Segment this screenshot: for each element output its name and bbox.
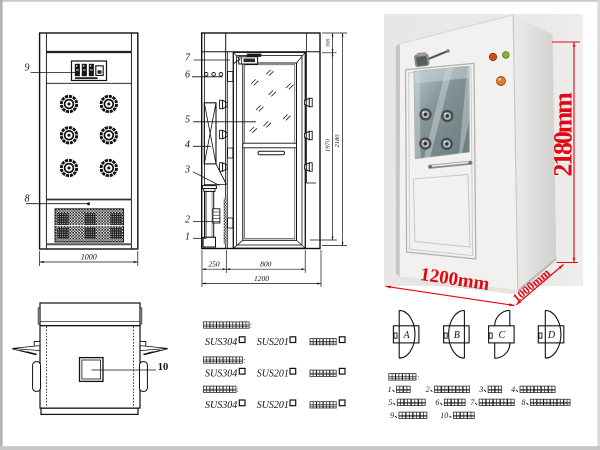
svg-text:C: C bbox=[498, 330, 505, 341]
svg-text::: : bbox=[237, 386, 239, 394]
svg-text:10: 10 bbox=[440, 411, 448, 420]
svg-text:1: 1 bbox=[388, 385, 392, 394]
svg-text:8: 8 bbox=[522, 398, 526, 407]
svg-text::: : bbox=[417, 373, 419, 381]
svg-text:D: D bbox=[547, 330, 556, 341]
svg-text:1200: 1200 bbox=[254, 274, 269, 283]
svg-text:2: 2 bbox=[426, 385, 430, 394]
svg-text:300: 300 bbox=[325, 39, 331, 49]
svg-text:9: 9 bbox=[390, 411, 394, 420]
svg-text:6: 6 bbox=[185, 70, 190, 81]
svg-text:2: 2 bbox=[185, 214, 190, 225]
svg-text:5: 5 bbox=[388, 398, 392, 407]
svg-text:4: 4 bbox=[185, 139, 190, 150]
svg-text::: : bbox=[250, 322, 252, 330]
svg-text:800: 800 bbox=[260, 260, 272, 269]
svg-text::: : bbox=[243, 357, 245, 365]
svg-text:B: B bbox=[454, 330, 460, 341]
svg-text:10: 10 bbox=[158, 362, 169, 373]
svg-text:SUS304: SUS304 bbox=[205, 337, 237, 348]
svg-text:3: 3 bbox=[478, 385, 483, 394]
svg-text:SUS304: SUS304 bbox=[205, 400, 237, 411]
svg-text:2180: 2180 bbox=[334, 134, 341, 148]
svg-text:5: 5 bbox=[185, 115, 190, 126]
svg-text:SUS201: SUS201 bbox=[257, 369, 289, 380]
svg-text:1970: 1970 bbox=[324, 138, 331, 152]
svg-text:2180mm: 2180mm bbox=[549, 92, 578, 177]
svg-text:250: 250 bbox=[208, 260, 220, 269]
svg-text:A: A bbox=[403, 330, 411, 341]
svg-text:6: 6 bbox=[435, 398, 439, 407]
svg-text:3: 3 bbox=[184, 164, 190, 175]
svg-text:SUS304: SUS304 bbox=[205, 369, 237, 380]
svg-text:SUS201: SUS201 bbox=[257, 400, 289, 411]
svg-text:8: 8 bbox=[25, 194, 30, 205]
svg-text:1: 1 bbox=[185, 231, 190, 242]
svg-text:4: 4 bbox=[511, 385, 515, 394]
svg-text:SUS201: SUS201 bbox=[257, 337, 289, 348]
svg-text:1000: 1000 bbox=[81, 253, 97, 262]
svg-text:9: 9 bbox=[25, 63, 30, 74]
